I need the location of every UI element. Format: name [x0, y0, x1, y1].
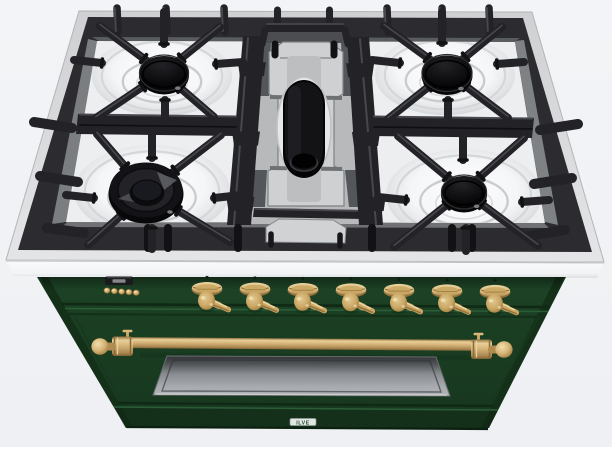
svg-text:ILVE: ILVE	[296, 421, 310, 427]
